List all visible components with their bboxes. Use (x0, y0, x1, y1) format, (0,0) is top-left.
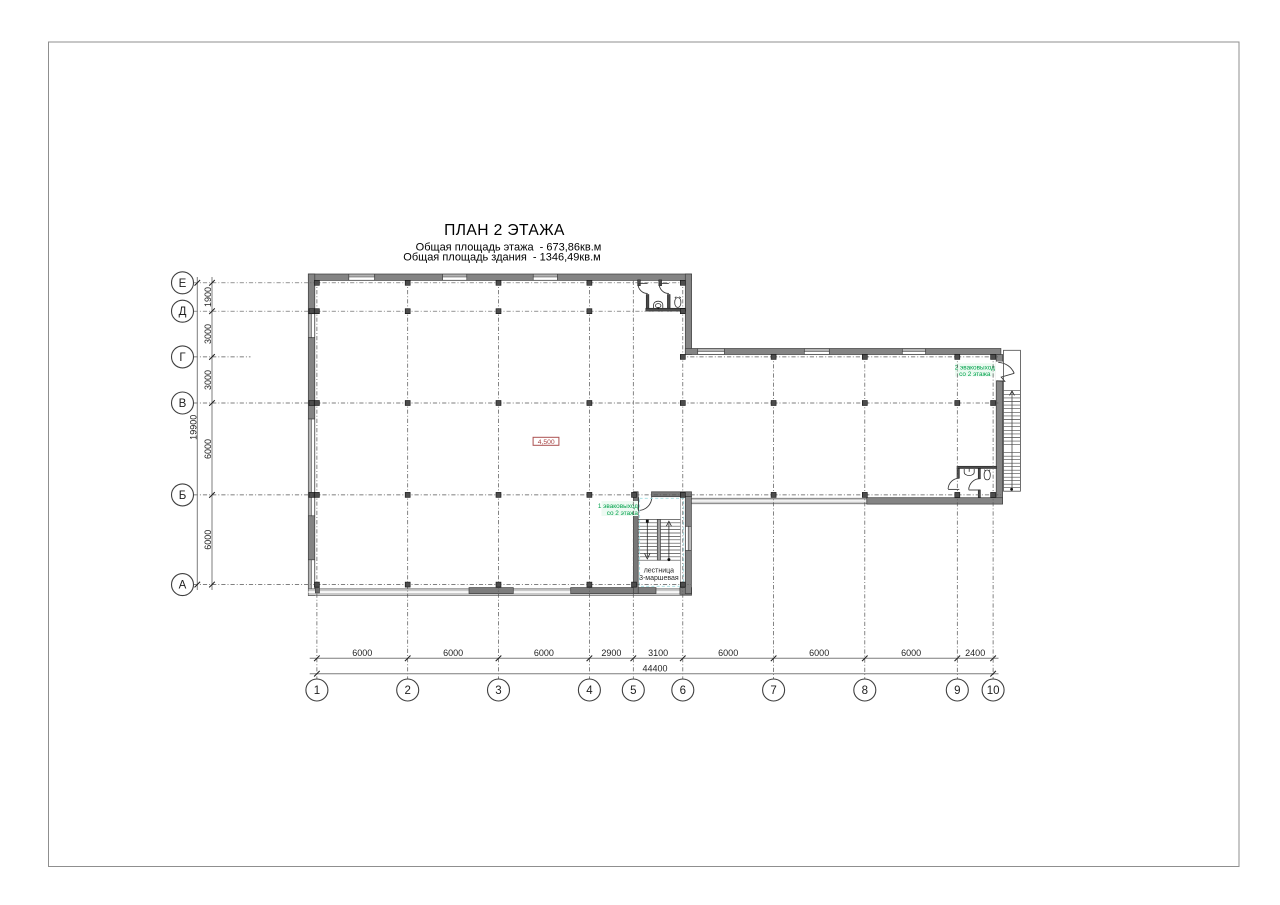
svg-text:7: 7 (770, 685, 776, 697)
svg-text:3100: 3100 (648, 648, 668, 658)
svg-text:со 2 этажа: со 2 этажа (607, 510, 639, 517)
svg-text:Е: Е (179, 278, 187, 290)
svg-text:6: 6 (680, 685, 686, 697)
svg-text:6000: 6000 (352, 648, 372, 658)
svg-text:ПЛАН 2 ЭТАЖА: ПЛАН 2 ЭТАЖА (444, 222, 565, 239)
svg-text:1: 1 (314, 685, 320, 697)
svg-text:1900: 1900 (203, 287, 213, 307)
svg-text:44400: 44400 (642, 663, 667, 673)
svg-text:6000: 6000 (718, 648, 738, 658)
svg-text:со 2 этажа: со 2 этажа (959, 371, 991, 378)
svg-text:2900: 2900 (601, 648, 621, 658)
svg-text:9: 9 (954, 685, 960, 697)
svg-text:3: 3 (495, 685, 501, 697)
svg-text:5: 5 (630, 685, 636, 697)
svg-text:6000: 6000 (203, 439, 213, 459)
svg-text:2400: 2400 (965, 648, 985, 658)
svg-text:19900: 19900 (188, 415, 198, 440)
svg-text:3000: 3000 (203, 324, 213, 344)
svg-text:4,500: 4,500 (538, 439, 555, 446)
svg-text:6000: 6000 (809, 648, 829, 658)
svg-text:6000: 6000 (443, 648, 463, 658)
svg-text:А: А (179, 580, 187, 592)
svg-text:3000: 3000 (203, 370, 213, 390)
svg-text:В: В (179, 398, 187, 410)
svg-text:6000: 6000 (203, 530, 213, 550)
svg-text:Б: Б (179, 490, 187, 502)
svg-text:6000: 6000 (534, 648, 554, 658)
svg-text:8: 8 (862, 685, 868, 697)
svg-text:Д: Д (179, 306, 187, 318)
svg-text:3-маршевая: 3-маршевая (639, 575, 679, 582)
svg-text:6000: 6000 (901, 648, 921, 658)
svg-text:1 эваковыход: 1 эваковыход (598, 503, 638, 510)
svg-text:2: 2 (404, 685, 410, 697)
svg-text:Общая площадь здания - 1346,4: Общая площадь здания - 1346,49кв.м (403, 252, 600, 264)
svg-text:10: 10 (987, 685, 1000, 697)
svg-text:лестница: лестница (644, 568, 674, 575)
svg-text:4: 4 (586, 685, 593, 697)
svg-text:Г: Г (179, 352, 186, 364)
